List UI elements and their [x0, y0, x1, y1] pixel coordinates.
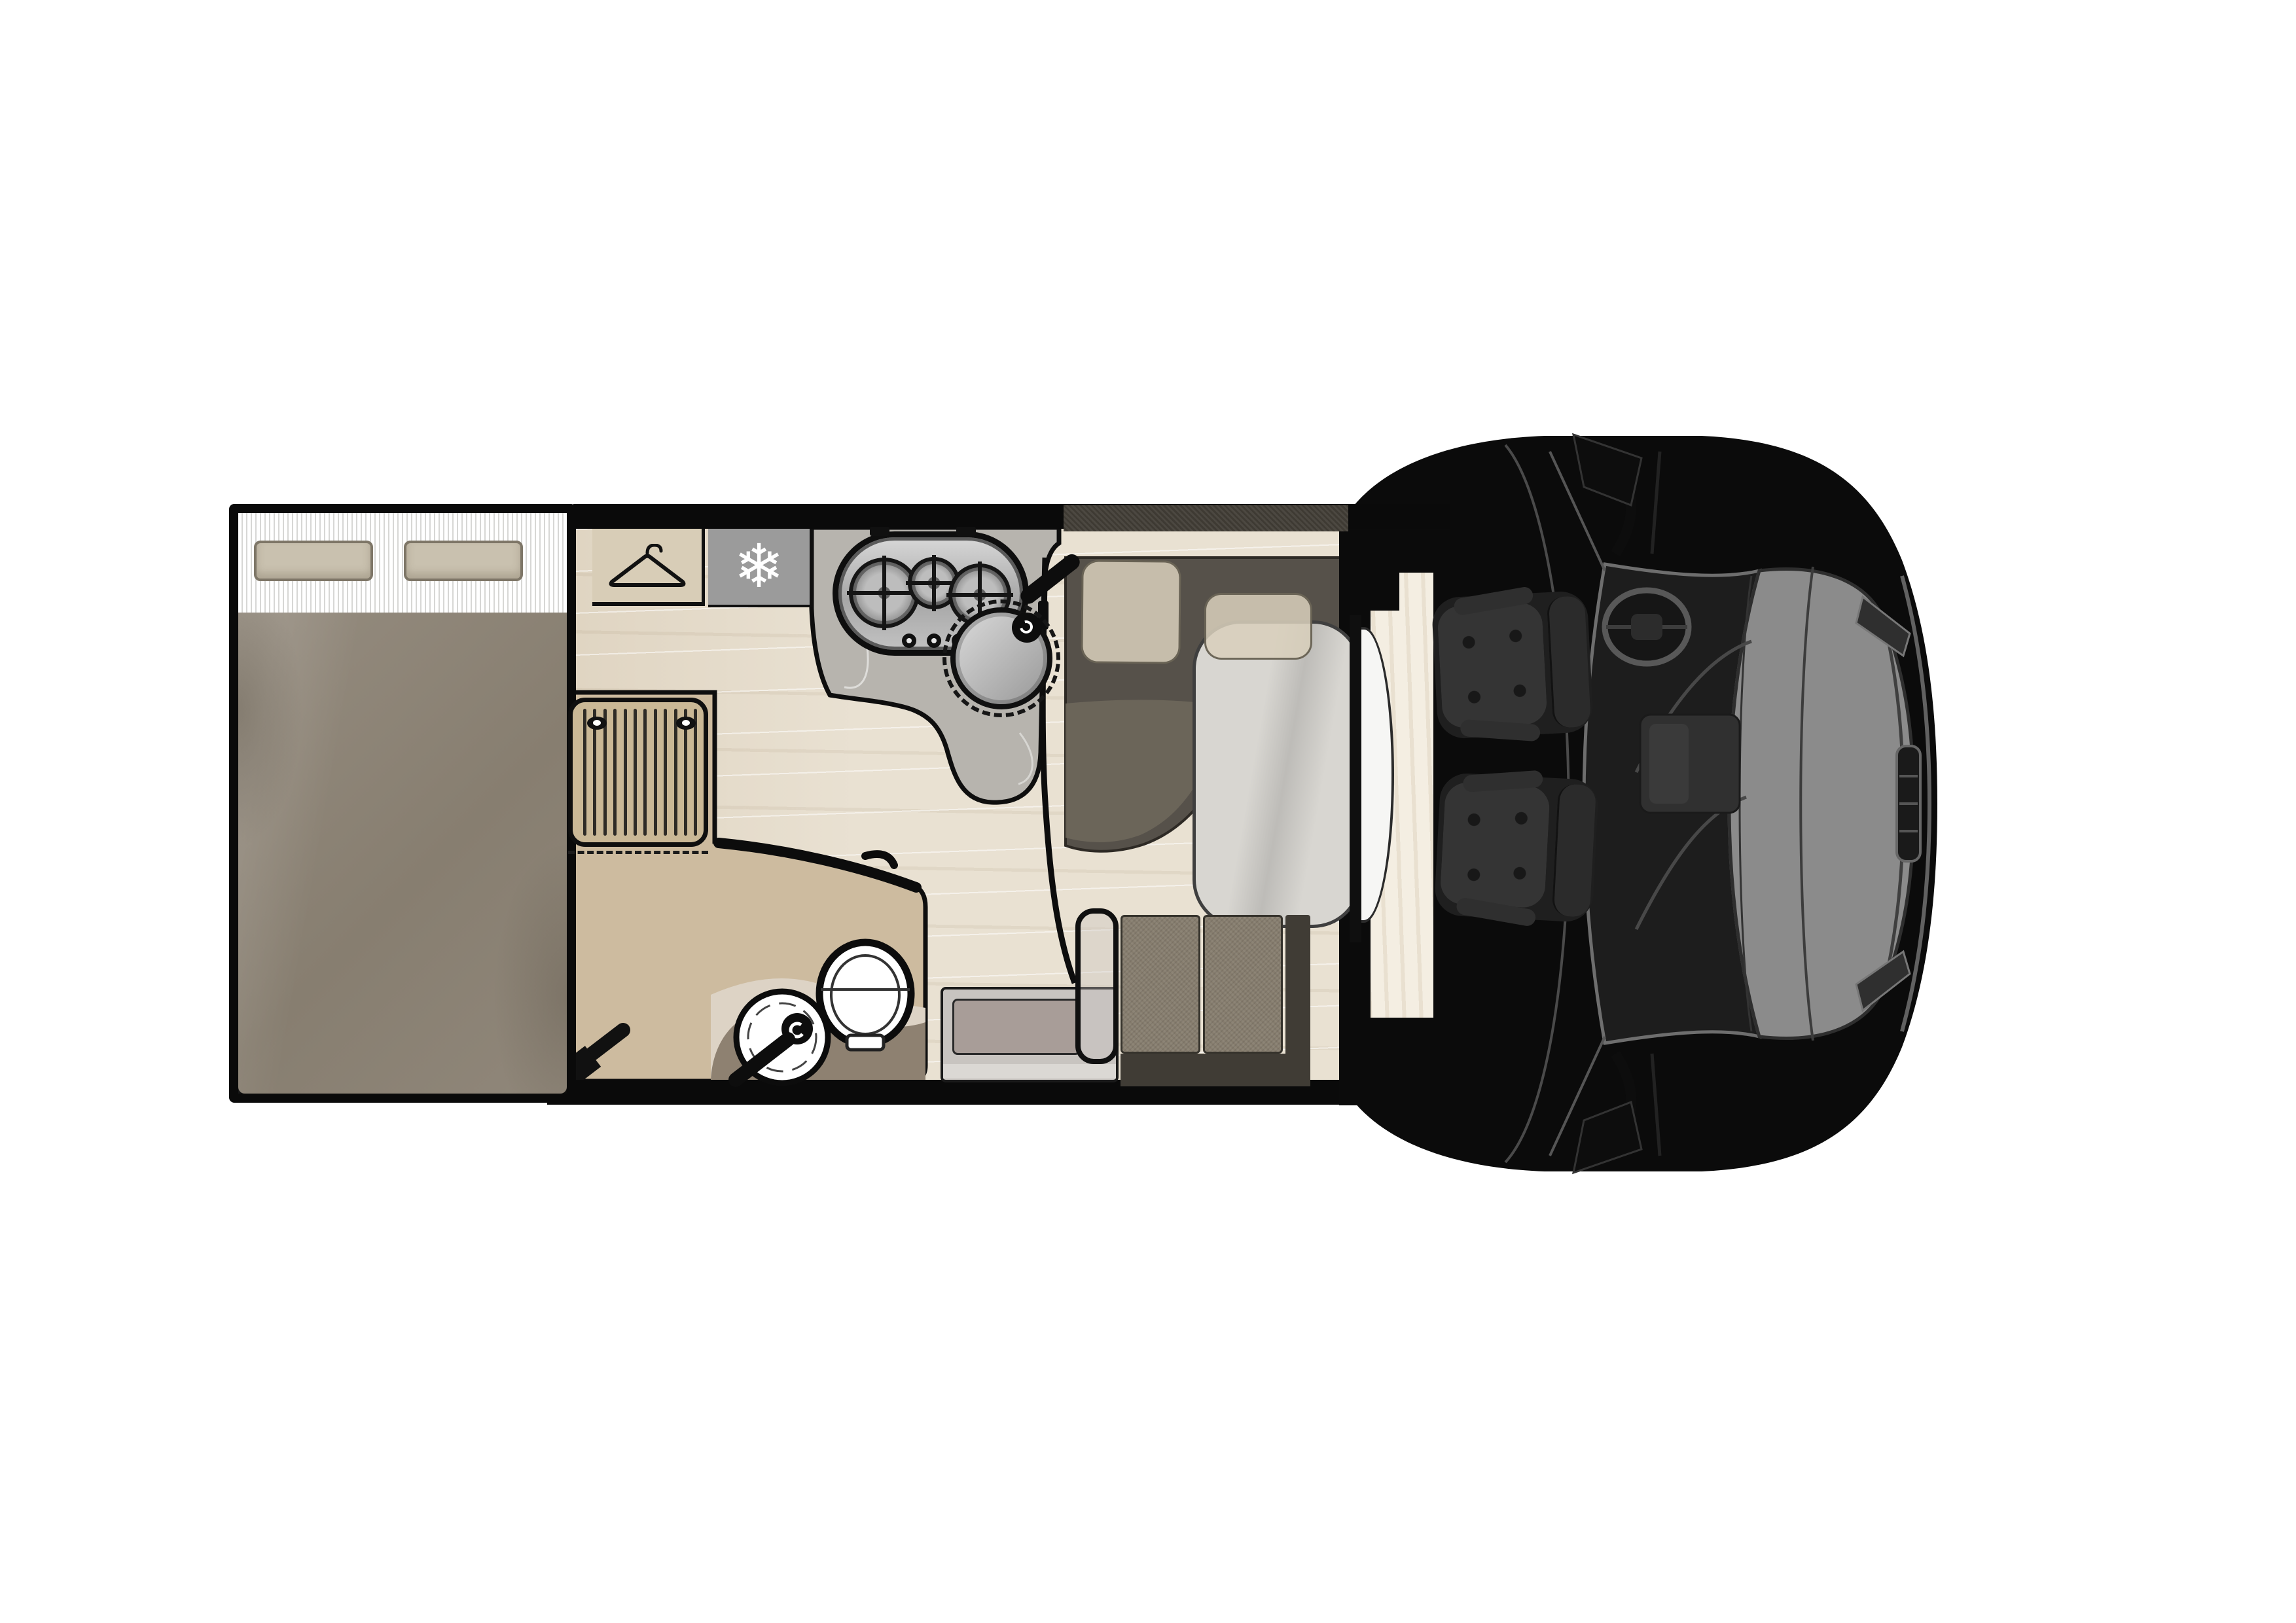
washbasin	[736, 991, 828, 1083]
partition-wall	[1350, 615, 1361, 942]
floor-plan: ❄	[0, 0, 2296, 1623]
basin-layer	[0, 0, 2296, 1623]
